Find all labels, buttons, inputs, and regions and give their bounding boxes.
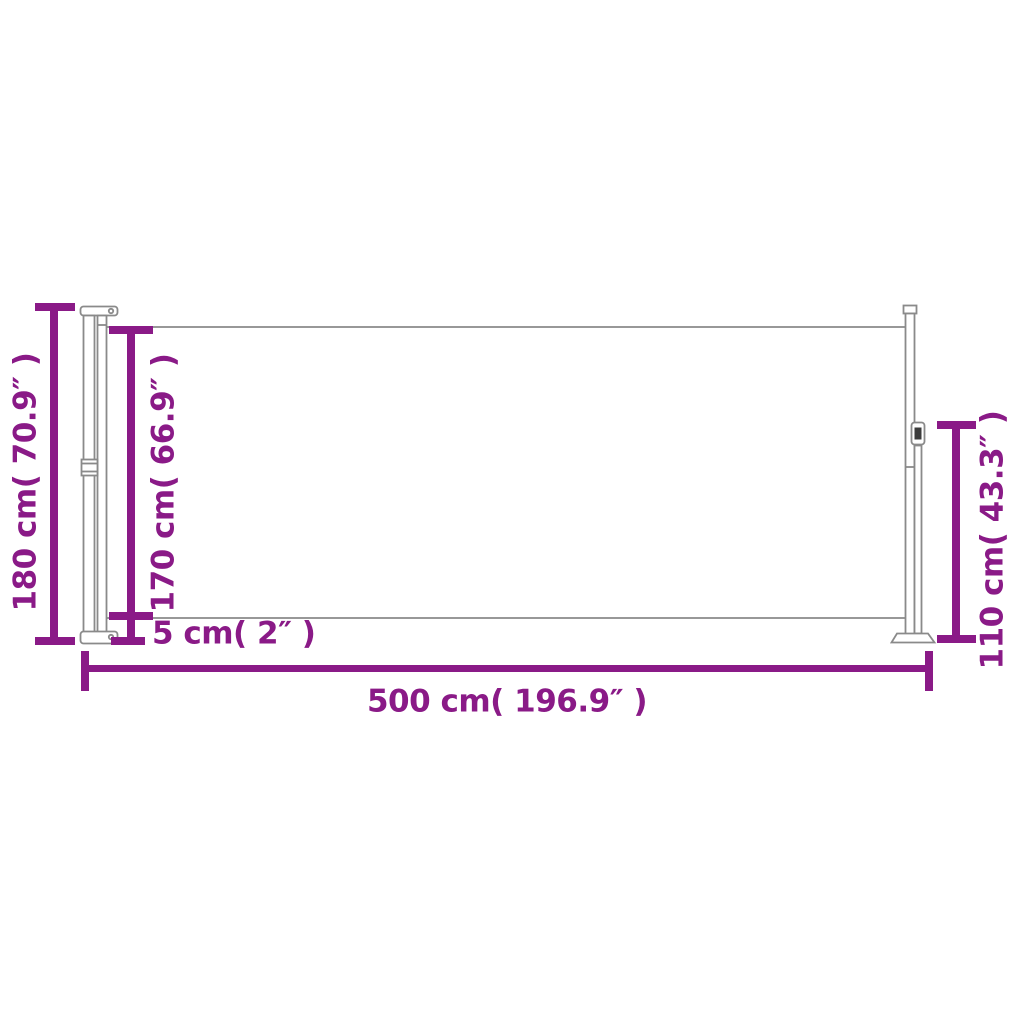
dim-overall-height-stem: [50, 305, 58, 643]
overall-height-label: 180 cm( 70.9″ ): [11, 353, 42, 612]
cassette-post: [81, 307, 118, 644]
pole-front-profile: [915, 446, 922, 634]
pole-height-label: 110 cm( 43.3″ ): [978, 411, 1009, 670]
pole-handle-latch: [915, 428, 922, 440]
bottom-gap-label: 5 cm( 2″ ): [152, 619, 315, 650]
dim-bottom-gap-tick-bottom: [111, 637, 145, 645]
dim-overall-height-tick-bottom: [35, 637, 75, 645]
cassette-top-cap: [81, 307, 118, 316]
dim-overall-height-tick-top: [35, 303, 75, 311]
dim-overall-length-tick-left: [81, 651, 89, 691]
dim-pole-height-stem: [952, 423, 960, 641]
cassette-wall-bracket: [82, 460, 98, 476]
dim-fabric-height-tick-top: [109, 326, 153, 334]
fabric-height-label: 170 cm( 66.9″ ): [149, 354, 180, 613]
dim-pole-height-tick-bottom: [937, 635, 976, 643]
dim-fabric-height-stem: [127, 328, 135, 618]
pole-tube: [906, 314, 915, 638]
dim-overall-length-line: [85, 665, 929, 672]
pole-top-cap: [904, 306, 917, 314]
pull-out-pole: [892, 306, 935, 643]
overall-length-label: 500 cm( 196.9″ ): [367, 687, 647, 718]
pole-foot-plate: [892, 634, 935, 643]
cassette-front-tube: [98, 316, 107, 633]
dim-pole-height-tick-top: [937, 421, 976, 429]
dim-overall-length-tick-right: [925, 651, 933, 691]
diagram-canvas: 180 cm( 70.9″ ) 170 cm( 66.9″ ) 5 cm( 2″…: [0, 0, 1024, 1024]
